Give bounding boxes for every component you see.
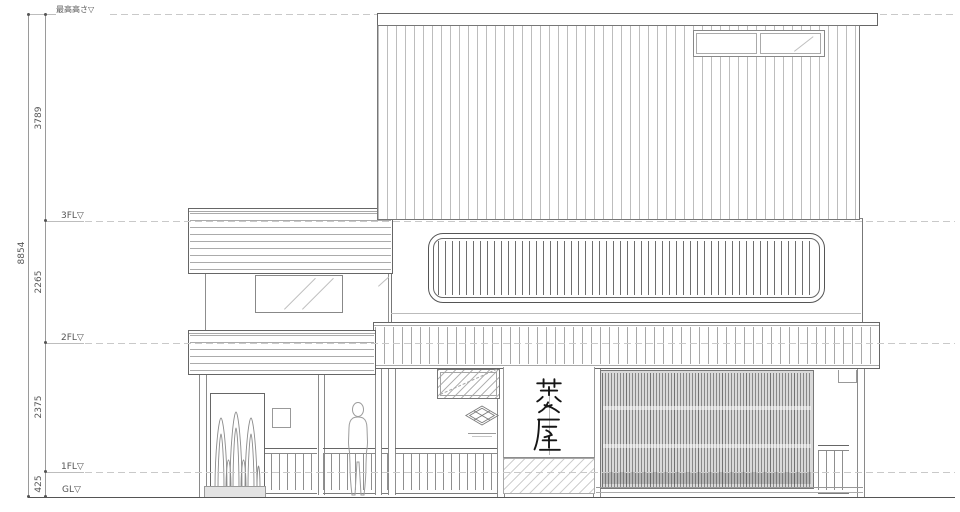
overall-dimension-line	[28, 14, 29, 497]
annex-band-edge	[189, 333, 375, 334]
fl1-stub	[45, 472, 84, 473]
louver-slats	[438, 241, 815, 295]
glass-reflection-line	[302, 278, 334, 310]
annex-second-floor-window	[255, 275, 343, 313]
third-floor-window	[693, 30, 825, 57]
arch-curtain-pattern	[211, 394, 261, 489]
dim-tick	[44, 13, 47, 16]
annex-fascia-band	[188, 330, 376, 375]
screen-bottom-rail	[603, 472, 811, 484]
corner-post	[199, 373, 207, 497]
fascia-vertical-boards	[375, 327, 878, 364]
railing-segment	[395, 448, 498, 494]
fl1-level-line	[85, 472, 955, 473]
gl-label: GL▽	[62, 485, 81, 495]
window-pane-left	[696, 33, 757, 54]
hatched-transom-window	[437, 369, 500, 399]
dim-tick	[44, 470, 47, 473]
post	[375, 367, 382, 495]
screen-base-line	[596, 492, 863, 493]
wall-step-detail	[838, 370, 857, 383]
glass-reflection-line	[284, 278, 316, 310]
max-height-label: 最高高さ▽	[56, 5, 94, 15]
dim-tick	[27, 13, 30, 16]
segment-dimension-line	[45, 14, 46, 497]
dim-total: 8854	[17, 233, 27, 273]
hishi-diamond-logo	[463, 403, 501, 429]
fl3-stub	[45, 221, 84, 222]
second-floor-fascia-band	[373, 322, 880, 369]
fl3-label: 3FL▽	[61, 211, 84, 221]
dim-2375: 2375	[34, 387, 44, 427]
annex-horizontal-siding	[190, 335, 374, 371]
louver-ribbon-window	[428, 233, 825, 303]
dim-tick	[44, 341, 47, 344]
fascia-edge-line	[374, 325, 879, 326]
wall-joint-line	[391, 313, 861, 314]
entry-door-noren-pattern	[210, 393, 265, 494]
logo-caption-text	[468, 433, 496, 434]
right-corner-post	[857, 367, 865, 497]
dim-425: 425	[34, 464, 44, 504]
annex-band-edge	[189, 211, 392, 212]
fl2-label: 2FL▽	[61, 333, 84, 343]
screen-slats	[602, 373, 812, 487]
noren-calligraphy	[528, 377, 570, 453]
dim-tick	[44, 219, 47, 222]
railing-balusters	[818, 450, 849, 490]
fl2-level-line	[85, 343, 955, 344]
annex-wall-edge	[205, 272, 206, 330]
fl2-stub	[45, 343, 84, 344]
small-sign-plate	[272, 408, 291, 428]
elevation-drawing: 最高高さ▽ 3FL▽ 2FL▽ 1FL▽ GL▽ 8854 3789 2265 …	[0, 0, 960, 512]
ground-line	[28, 497, 955, 498]
noren-curtain	[503, 367, 595, 458]
transom-inner-frame	[440, 372, 497, 396]
human-figure	[344, 402, 372, 497]
railing-segment	[263, 448, 317, 494]
dim-3789: 3789	[34, 98, 44, 138]
kickplate-hatched-panel	[503, 458, 595, 494]
fl3-level-line	[85, 221, 955, 222]
max-height-stub	[28, 14, 56, 15]
dim-2265: 2265	[34, 262, 44, 302]
fascia-edge-line	[374, 365, 879, 366]
annex-roof-band	[188, 208, 393, 274]
screen-rail-line	[603, 406, 811, 410]
screen-base-line	[596, 487, 863, 488]
screen-rail-line	[603, 444, 811, 448]
logo-caption-subtext	[472, 436, 492, 437]
fl1-label: 1FL▽	[61, 462, 84, 472]
